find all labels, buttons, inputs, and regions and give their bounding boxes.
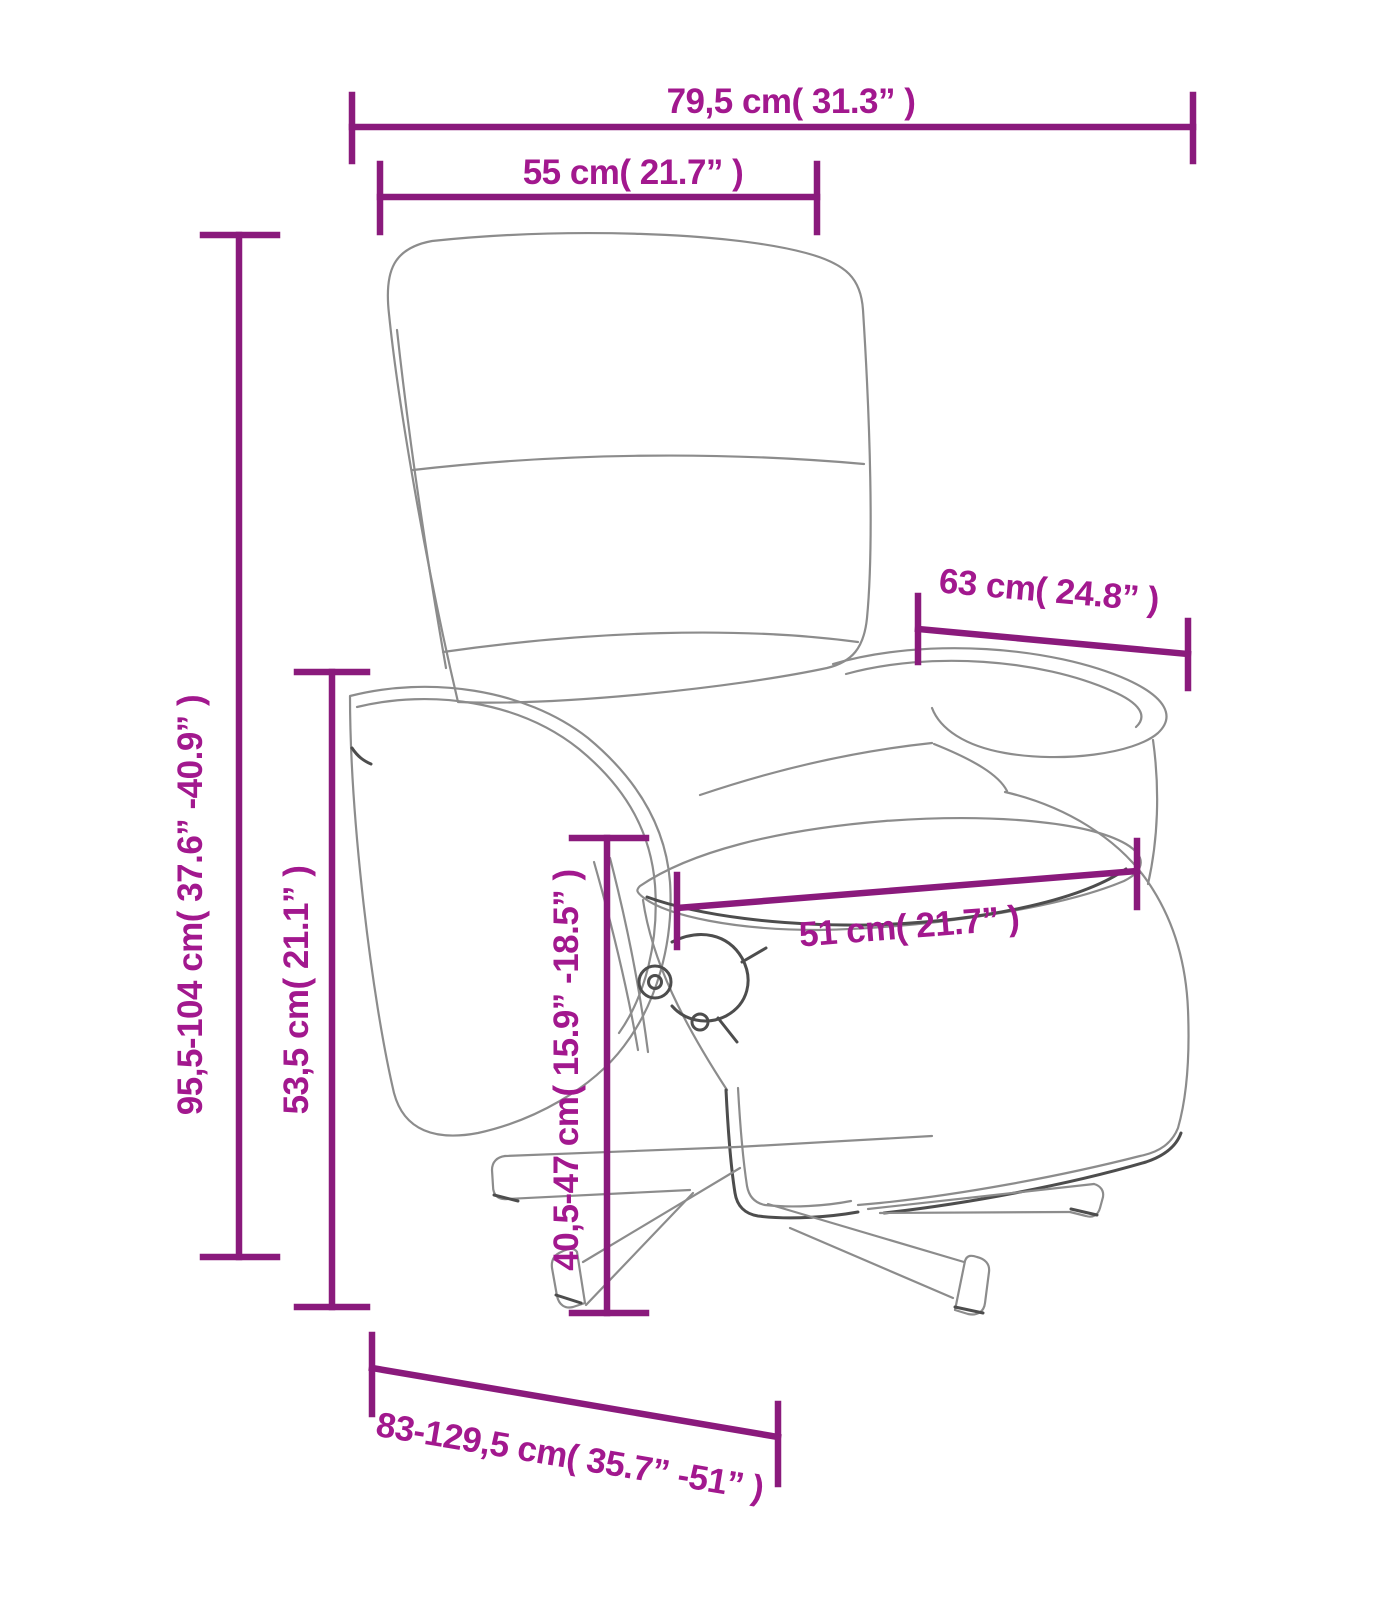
dim-backrest-width-label: 55 cm( 21.7” ) bbox=[523, 153, 744, 192]
dimension-diagram: 79,5 cm( 31.3” ) 55 cm( 21.7” ) 95,5-104… bbox=[0, 0, 1400, 1600]
left-armrest-notch bbox=[352, 748, 371, 764]
dim-overall-height: 95,5-104 cm( 37.6” -40.9” ) bbox=[171, 235, 277, 1257]
base-leg-front-right-bottom bbox=[790, 1228, 953, 1298]
frame-outer bbox=[726, 1090, 858, 1218]
base-leg-rear-right-top bbox=[868, 1184, 1094, 1209]
right-armrest-inner-edge bbox=[846, 661, 1141, 727]
dimension-annotations: 79,5 cm( 31.3” ) 55 cm( 21.7” ) 95,5-104… bbox=[171, 82, 1193, 1508]
dim-overall-width-label: 79,5 cm( 31.3” ) bbox=[667, 82, 916, 121]
base-leg-rear-rod bbox=[737, 1136, 932, 1147]
dim-overall-width: 79,5 cm( 31.3” ) bbox=[352, 82, 1193, 161]
seat-side-edge-outer bbox=[610, 858, 648, 1052]
frame-inner bbox=[738, 1088, 851, 1206]
dim-overall-height-label: 95,5-104 cm( 37.6” -40.9” ) bbox=[171, 695, 210, 1115]
left-armrest-inner-edge bbox=[357, 699, 656, 1033]
base-leg-front-left-bottom bbox=[586, 1193, 693, 1305]
dim-overall-depth-label: 83-129,5 cm( 35.7” -51” ) bbox=[373, 1405, 766, 1508]
dim-armrest-depth-label: 63 cm( 24.8” ) bbox=[937, 562, 1160, 620]
recline-mechanism bbox=[639, 935, 766, 1042]
backrest-seam-top bbox=[413, 456, 864, 470]
base-leg-front-right-cap bbox=[955, 1256, 989, 1315]
base-leg-left-cap bbox=[492, 1156, 507, 1199]
backrest-seam-bottom bbox=[443, 633, 858, 652]
diagram-canvas: 79,5 cm( 31.3” ) 55 cm( 21.7” ) 95,5-104… bbox=[0, 0, 1400, 1600]
base-leg-left-top bbox=[505, 1147, 737, 1156]
dim-seat-height-label: 40,5-47 cm( 15.9” -18.5” ) bbox=[547, 869, 586, 1270]
mechanism-bracket bbox=[672, 935, 748, 1021]
right-armrest-outline bbox=[833, 648, 1166, 757]
mechanism-link-upper bbox=[742, 948, 766, 962]
base-leg-left-bottom bbox=[507, 1190, 690, 1199]
dim-armrest-height-label: 53,5 cm( 21.1” ) bbox=[277, 866, 316, 1115]
right-armrest-end-edge bbox=[1148, 740, 1157, 884]
dim-seat-width-line bbox=[677, 871, 1137, 908]
seat-back-gap-line bbox=[700, 743, 932, 795]
dim-armrest-depth: 63 cm( 24.8” ) bbox=[918, 562, 1188, 688]
backrest-outline bbox=[388, 233, 871, 702]
right-side-panel-piping bbox=[884, 1133, 1181, 1213]
base-leg-rear-right-bottom bbox=[880, 1212, 1070, 1213]
mechanism-link-lower bbox=[718, 1018, 737, 1042]
dim-seat-width: 51 cm( 21.7” ) bbox=[677, 841, 1137, 955]
chair-line-art bbox=[350, 233, 1189, 1314]
dim-seat-width-label: 51 cm( 21.7” ) bbox=[798, 898, 1021, 954]
dim-armrest-height: 53,5 cm( 21.1” ) bbox=[277, 672, 367, 1307]
dim-overall-depth: 83-129,5 cm( 35.7” -51” ) bbox=[372, 1335, 778, 1508]
dim-backrest-width: 55 cm( 21.7” ) bbox=[380, 153, 817, 232]
dim-armrest-depth-line bbox=[918, 629, 1188, 654]
